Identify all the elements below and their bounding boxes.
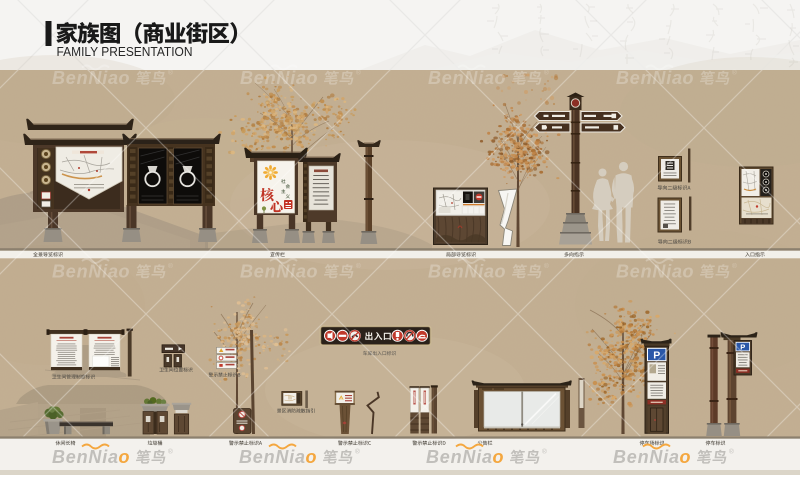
svg-text:®: ® (355, 448, 360, 456)
svg-text:®: ® (544, 262, 549, 270)
svg-text:®: ® (168, 262, 173, 270)
svg-text:®: ® (356, 69, 361, 77)
svg-text:BenNia: BenNia (240, 262, 307, 282)
svg-text:o: o (306, 447, 317, 467)
svg-text:BenNia: BenNia (426, 447, 493, 467)
svg-text:o: o (493, 447, 504, 467)
svg-text:®: ® (168, 448, 173, 456)
svg-text:o: o (495, 68, 506, 88)
svg-text:BenNia: BenNia (428, 262, 495, 282)
svg-text:®: ® (729, 448, 734, 456)
svg-text:BenNia: BenNia (52, 68, 119, 88)
svg-text:BenNia: BenNia (240, 68, 307, 88)
svg-text:®: ® (542, 448, 547, 456)
svg-text:o: o (680, 447, 691, 467)
svg-text:o: o (119, 447, 130, 467)
svg-text:o: o (119, 68, 130, 88)
svg-text:®: ® (356, 262, 361, 270)
svg-text:®: ® (168, 69, 173, 77)
svg-text:o: o (683, 262, 694, 282)
svg-text:o: o (307, 68, 318, 88)
svg-text:BenNia: BenNia (428, 68, 495, 88)
svg-text:o: o (495, 262, 506, 282)
svg-text:®: ® (544, 69, 549, 77)
svg-text:BenNia: BenNia (52, 447, 119, 467)
svg-text:o: o (307, 262, 318, 282)
svg-text:BenNia: BenNia (52, 262, 119, 282)
svg-text:o: o (683, 68, 694, 88)
svg-text:o: o (119, 262, 130, 282)
svg-text:BenNia: BenNia (616, 262, 683, 282)
svg-text:BenNia: BenNia (616, 68, 683, 88)
svg-text:BenNia: BenNia (613, 447, 680, 467)
svg-text:®: ® (732, 69, 737, 77)
svg-text:®: ® (732, 262, 737, 270)
svg-text:BenNia: BenNia (239, 447, 306, 467)
